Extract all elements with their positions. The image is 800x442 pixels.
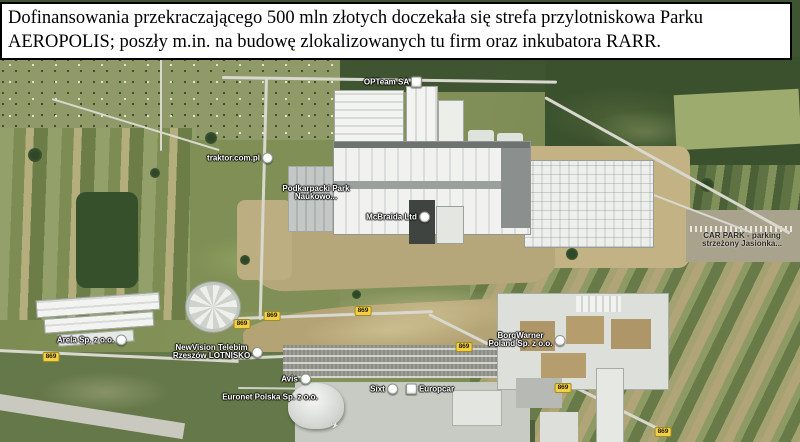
road-shield-869: 869 — [264, 311, 281, 321]
road — [160, 59, 162, 151]
road-shield-869: 869 — [555, 383, 572, 393]
road-shield-869: 869 — [43, 352, 60, 362]
poi-label: McBraida Ltd — [366, 213, 417, 222]
airport-building — [540, 412, 578, 442]
map-image: ✈ 869 869 869 869 869 869 869 OPTeam SA … — [0, 0, 800, 442]
road-shield-869: 869 — [655, 427, 672, 437]
forest-patch — [76, 192, 138, 288]
poi-arela[interactable]: Arela Sp. z o.o. — [57, 335, 127, 346]
poi-label: Sixt — [370, 385, 385, 394]
round-building — [186, 282, 240, 332]
caption-line-2: AEROPOLIS; poszły m.in. na budowę zlokal… — [8, 30, 785, 54]
poi-label: strzeżony Jasionka... — [702, 240, 782, 248]
road-shield-869: 869 — [456, 342, 473, 352]
tree — [240, 255, 250, 265]
airport-building — [452, 390, 502, 426]
poi-car-park[interactable]: CAR PARK - parking strzeżony Jasionka... — [702, 232, 782, 248]
construction-dirt — [237, 200, 292, 280]
tree — [205, 132, 217, 144]
roof-section — [501, 148, 530, 228]
poi-label: Poland Sp. z o.o. — [489, 340, 553, 348]
poi-label: Arela Sp. z o.o. — [57, 336, 114, 345]
tree — [28, 148, 42, 162]
poi-europcar[interactable]: Europcar — [406, 384, 454, 395]
poi-mcbraida[interactable]: McBraida Ltd — [366, 212, 430, 223]
poi-avis[interactable]: Avis — [281, 374, 311, 385]
courtyard — [566, 316, 604, 344]
tree — [566, 248, 578, 260]
caption-box: Dofinansowania przekraczającego 500 mln … — [0, 2, 792, 60]
poi-label: OPTeam SA — [364, 78, 409, 87]
poi-circle-icon — [419, 212, 430, 223]
road-shield-869: 869 — [234, 319, 251, 329]
roof-unit — [576, 296, 621, 312]
poi-label: Europcar — [419, 385, 454, 394]
poi-label: Naukowo... — [295, 193, 337, 201]
poi-circle-icon — [387, 384, 398, 395]
caption-line-1: Dofinansowania przekraczającego 500 mln … — [8, 6, 785, 30]
poi-label: Euronet Polska Sp. z o.o. — [222, 393, 318, 402]
poi-sixt[interactable]: Sixt — [370, 384, 398, 395]
poi-circle-icon — [262, 153, 273, 164]
poi-label: Avis — [281, 375, 298, 384]
courtyard — [611, 319, 651, 349]
poi-circle-icon — [300, 374, 311, 385]
poi-label: Rzeszów LOTNISKO — [173, 352, 250, 360]
courtyard — [541, 353, 586, 378]
poi-label: traktor.com.pl — [207, 154, 260, 163]
poi-square-icon — [411, 77, 422, 88]
airport-building — [596, 368, 624, 442]
tree — [352, 290, 361, 299]
poi-euronet[interactable]: Euronet Polska Sp. z o.o. — [222, 393, 318, 402]
poi-newvision[interactable]: NewVision Telebim Rzeszów LOTNISKO — [173, 344, 263, 360]
poi-opteam[interactable]: OPTeam SA — [364, 77, 422, 88]
warehouse-building — [524, 160, 654, 248]
mcbraida-building — [436, 206, 464, 244]
road-shield-869: 869 — [355, 306, 372, 316]
poi-circle-icon — [252, 347, 263, 358]
tree — [150, 168, 160, 178]
poi-borgwarner[interactable]: BorgWarner Poland Sp. z o.o. — [489, 332, 566, 348]
parking-lot — [283, 345, 521, 378]
poi-podkarpacki-park[interactable]: Podkarpacki Park Naukowo... — [282, 185, 349, 201]
poi-square-icon — [406, 384, 417, 395]
roof-grid — [525, 161, 653, 247]
poi-traktor[interactable]: traktor.com.pl — [207, 153, 273, 164]
poi-circle-icon — [116, 335, 127, 346]
poi-circle-icon — [555, 335, 566, 346]
